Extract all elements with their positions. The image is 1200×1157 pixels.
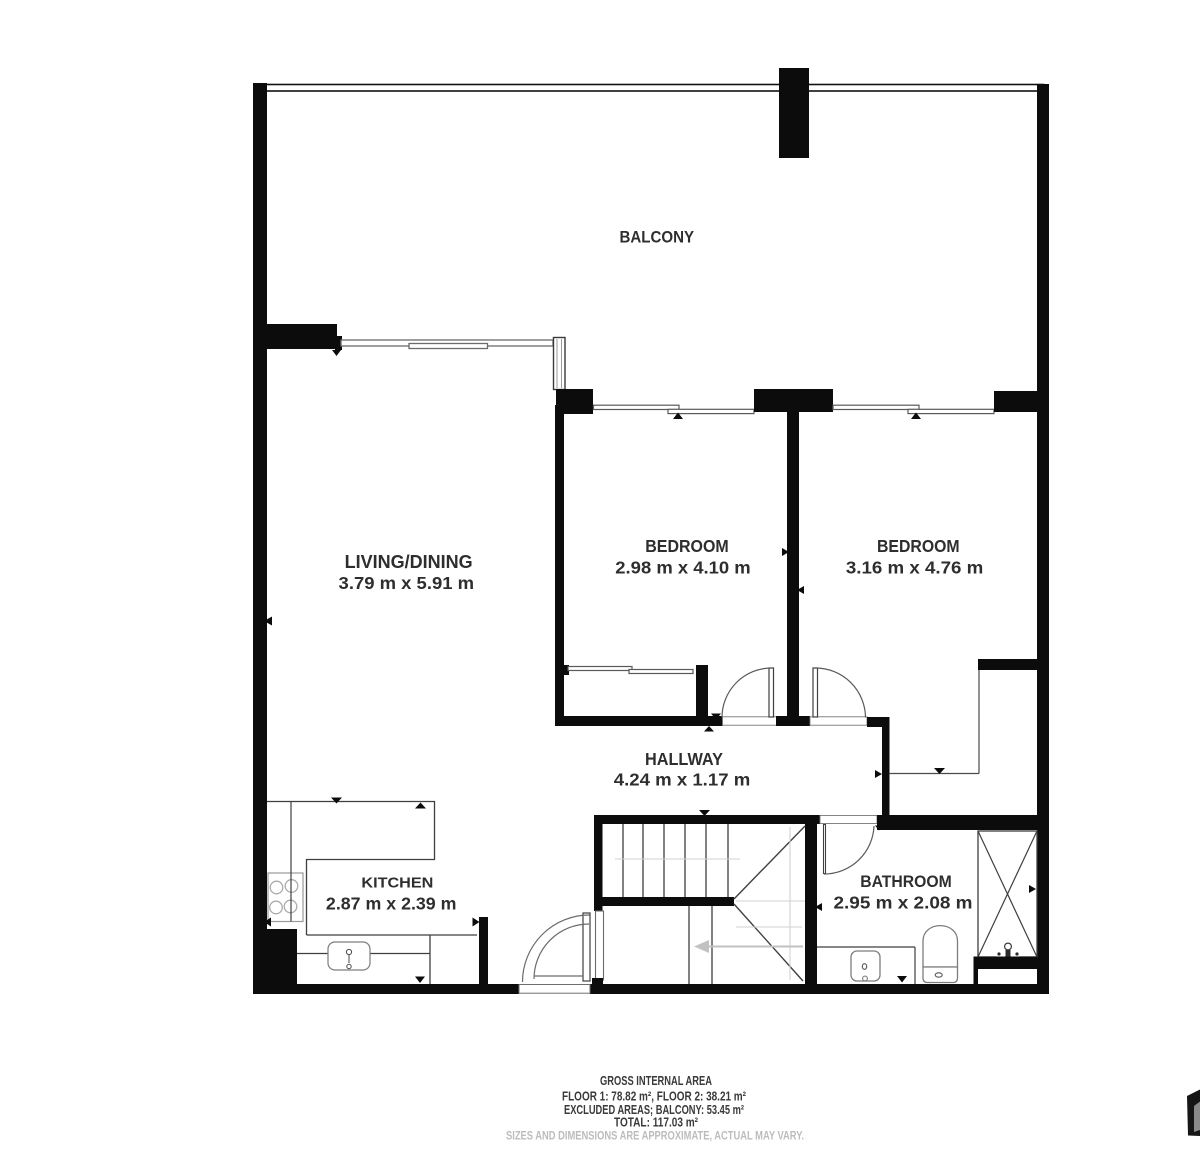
svg-text:2.95 m x 2.08 m: 2.95 m x 2.08 m [834,893,973,913]
svg-text:GROSS INTERNAL AREA: GROSS INTERNAL AREA [600,1073,712,1088]
svg-text:4.24 m x 1.17 m: 4.24 m x 1.17 m [614,769,751,789]
svg-text:2.98 m x 4.10 m: 2.98 m x 4.10 m [615,558,750,578]
svg-text:3.16 m x 4.76 m: 3.16 m x 4.76 m [846,558,984,578]
svg-text:BEDROOM: BEDROOM [645,536,729,556]
svg-text:KITCHEN: KITCHEN [361,875,433,892]
svg-text:LIVING/DINING: LIVING/DINING [345,552,473,572]
svg-text:TOTAL: 117.03 m²: TOTAL: 117.03 m² [614,1115,699,1130]
svg-text:BATHROOM: BATHROOM [860,872,952,891]
svg-text:HALLWAY: HALLWAY [645,749,723,769]
svg-text:2.87 m x 2.39 m: 2.87 m x 2.39 m [326,893,457,913]
svg-text:3.79 m x 5.91 m: 3.79 m x 5.91 m [339,573,475,593]
svg-text:BALCONY: BALCONY [620,229,695,247]
svg-text:SIZES AND DIMENSIONS ARE APPRO: SIZES AND DIMENSIONS ARE APPROXIMATE, AC… [506,1129,804,1143]
svg-text:BEDROOM: BEDROOM [877,536,960,556]
